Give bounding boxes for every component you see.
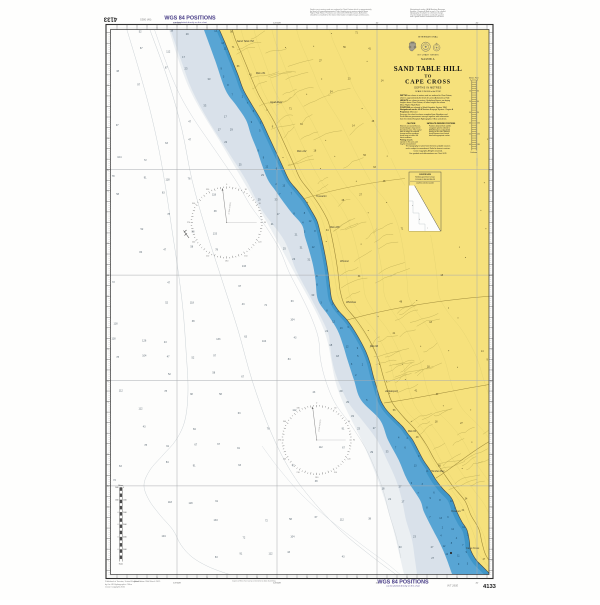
svg-text:60: 60 <box>469 144 471 146</box>
svg-text:90: 90 <box>264 222 266 224</box>
svg-text:WGS 84 POSITIONS: WGS 84 POSITIONS <box>377 579 429 585</box>
svg-text:104: 104 <box>142 354 147 357</box>
svg-text:CAUTION: CAUTION <box>407 122 416 125</box>
svg-text:INT CHART SERIES: INT CHART SERIES <box>417 54 439 57</box>
svg-text:1000: 1000 <box>115 499 119 501</box>
svg-text:300: 300 <box>192 203 195 205</box>
svg-text:118: 118 <box>168 501 173 504</box>
svg-text:Fathoms: Fathoms <box>471 151 478 154</box>
svg-text:60: 60 <box>477 101 479 103</box>
svg-text:0: 0 <box>123 487 124 489</box>
svg-text:4133: 4133 <box>103 15 117 21</box>
svg-text:118: 118 <box>212 193 217 196</box>
svg-text:300: 300 <box>283 421 286 423</box>
svg-text:INTERNATIONAL: INTERNATIONAL <box>418 36 439 39</box>
svg-text:240: 240 <box>283 458 286 460</box>
svg-text:50: 50 <box>469 133 471 135</box>
svg-text:from the United Kingdom Hydrog: from the United Kingdom Hydrographic Off… <box>400 117 446 120</box>
svg-text:22°: 22° <box>107 275 110 277</box>
svg-text:Lead line and echo sounder: Lead line and echo sounder <box>416 183 434 185</box>
svg-text:by the UK Hydrographic Office: by the UK Hydrographic Office <box>105 583 133 586</box>
svg-text:DEPTHS IN METRES: DEPTHS IN METRES <box>414 88 441 90</box>
svg-text:can be plotted directly on thi: can be plotted directly on this chart <box>386 585 420 588</box>
svg-text:120: 120 <box>258 241 261 243</box>
svg-text:330: 330 <box>206 189 209 191</box>
svg-text:60: 60 <box>259 203 261 205</box>
svg-text:22°: 22° <box>489 275 492 277</box>
svg-text:Crown Copyright 2015: Crown Copyright 2015 <box>105 585 126 588</box>
svg-text:Copies of this chart carry cor: Copies of this chart carry corrections t… <box>232 580 276 583</box>
svg-text:126: 126 <box>142 339 147 342</box>
svg-text:118: 118 <box>190 302 195 305</box>
svg-text:150: 150 <box>244 255 247 257</box>
svg-text:0: 0 <box>226 184 227 186</box>
svg-text:For symbols and abbreviations: For symbols and abbreviations see Chart … <box>409 152 446 155</box>
svg-text:Mile 96: Mile 96 <box>370 345 379 348</box>
svg-text:60: 60 <box>348 421 350 423</box>
svg-text:20: 20 <box>469 101 471 103</box>
svg-text:2000: 2000 <box>115 487 119 489</box>
svg-text:0: 0 <box>470 80 471 82</box>
svg-text:180: 180 <box>315 477 318 479</box>
svg-text:Toscanini: Toscanini <box>316 195 327 198</box>
svg-text:1:150 000–1:300 000 1960–98: 1:150 000–1:300 000 1960–98 <box>415 179 435 181</box>
svg-text:30: 30 <box>245 189 247 191</box>
svg-text:112: 112 <box>340 518 345 521</box>
svg-text:Sand Table Hill: Sand Table Hill <box>237 40 254 43</box>
svg-text:5000: 5000 <box>123 549 127 551</box>
svg-text:133: 133 <box>216 338 221 341</box>
svg-text:112: 112 <box>166 50 171 53</box>
svg-text:112: 112 <box>319 446 324 449</box>
svg-text:104: 104 <box>117 156 122 159</box>
svg-text:TO: TO <box>424 74 431 79</box>
svg-text:14°00'E: 14°00'E <box>273 582 281 584</box>
svg-text:210: 210 <box>297 472 300 474</box>
svg-text:118: 118 <box>189 502 194 505</box>
svg-text:30: 30 <box>334 408 336 410</box>
svg-text:150: 150 <box>334 472 337 474</box>
svg-text:3000: 3000 <box>123 524 127 526</box>
svg-text:WGS 84 POSITIONS: WGS 84 POSITIONS <box>164 15 216 21</box>
svg-text:30: 30 <box>477 90 479 92</box>
svg-text:0: 0 <box>316 403 317 405</box>
svg-text:CAPE CROSS: CAPE CROSS <box>405 80 451 86</box>
svg-text:104: 104 <box>162 535 167 538</box>
svg-text:Wlotzkas: Wlotzkas <box>346 301 357 304</box>
svg-text:Winston: Winston <box>340 260 350 263</box>
svg-text:Omaruru: Omaruru <box>451 510 461 513</box>
svg-text:can be plotted directly on thi: can be plotted directly on this chart <box>173 21 207 24</box>
svg-text:120: 120 <box>347 458 350 460</box>
svg-text:270: 270 <box>187 222 190 224</box>
svg-text:INT 2600: INT 2600 <box>447 583 459 587</box>
svg-text:1000: 1000 <box>123 499 127 501</box>
svg-text:13°50'E: 13°50'E <box>173 582 181 584</box>
svg-text:118: 118 <box>166 178 171 181</box>
svg-text:Henties Bay: Henties Bay <box>431 470 445 473</box>
svg-text:90: 90 <box>477 112 479 114</box>
svg-text:Mile 131: Mile 131 <box>256 72 266 75</box>
svg-text:2000: 2000 <box>123 512 127 514</box>
svg-text:104: 104 <box>262 340 267 343</box>
svg-text:112: 112 <box>119 389 124 392</box>
svg-text:Ugab River: Ugab River <box>270 101 283 104</box>
svg-text:10: 10 <box>469 90 471 92</box>
svg-text:Cape Cross: Cape Cross <box>466 547 480 550</box>
svg-text:104: 104 <box>290 318 295 321</box>
svg-text:118: 118 <box>114 323 119 326</box>
svg-text:S380 (46): S380 (46) <box>140 18 152 22</box>
svg-text:Scale: Scale <box>119 563 123 565</box>
svg-text:SCALE 1:150 000 at lat 22°00': SCALE 1:150 000 at lat 22°00' <box>415 90 441 93</box>
svg-text:180: 180 <box>477 144 480 146</box>
svg-text:118: 118 <box>112 337 117 340</box>
svg-text:112: 112 <box>269 553 274 556</box>
svg-text:should be consulted for the la: should be consulted for the latest infor… <box>310 13 370 16</box>
svg-text:210: 210 <box>206 255 209 257</box>
svg-text:SAND TABLE HILL: SAND TABLE HILL <box>394 65 462 73</box>
svg-text:90: 90 <box>353 440 355 442</box>
svg-text:133: 133 <box>214 519 219 522</box>
svg-text:NAMIBIA: NAMIBIA <box>421 58 435 61</box>
svg-text:30: 30 <box>469 112 471 114</box>
svg-text:New Edition 26th March 2015: New Edition 26th March 2015 <box>134 580 161 583</box>
svg-text:SATELLITE-DERIVED POSITIONS: SATELLITE-DERIVED POSITIONS <box>427 122 456 125</box>
svg-text:14°00'E: 14°00'E <box>273 22 281 24</box>
svg-text:Jakkalsputz: Jakkalsputz <box>385 390 399 393</box>
svg-text:4000: 4000 <box>123 537 127 539</box>
svg-text:Mile 122: Mile 122 <box>297 150 307 153</box>
svg-text:and a good lookout maintained: and a good lookout maintained at all tim… <box>410 15 445 18</box>
svg-text:330: 330 <box>297 408 300 410</box>
svg-text:270: 270 <box>278 440 281 442</box>
svg-text:133: 133 <box>213 233 218 236</box>
svg-text:Mile 108: Mile 108 <box>330 226 340 229</box>
svg-text:0: 0 <box>477 80 478 82</box>
svg-text:Metres Feet: Metres Feet <box>469 77 479 80</box>
svg-text:133: 133 <box>242 265 247 268</box>
svg-text:40: 40 <box>469 123 471 125</box>
svg-text:150: 150 <box>477 133 480 135</box>
svg-text:104: 104 <box>290 535 295 538</box>
svg-text:Mile 84: Mile 84 <box>408 430 417 433</box>
svg-text:240: 240 <box>192 241 195 243</box>
svg-text:112: 112 <box>139 408 144 411</box>
svg-text:4133: 4133 <box>483 584 497 590</box>
svg-text:120: 120 <box>477 123 480 125</box>
svg-text:180: 180 <box>225 260 228 262</box>
